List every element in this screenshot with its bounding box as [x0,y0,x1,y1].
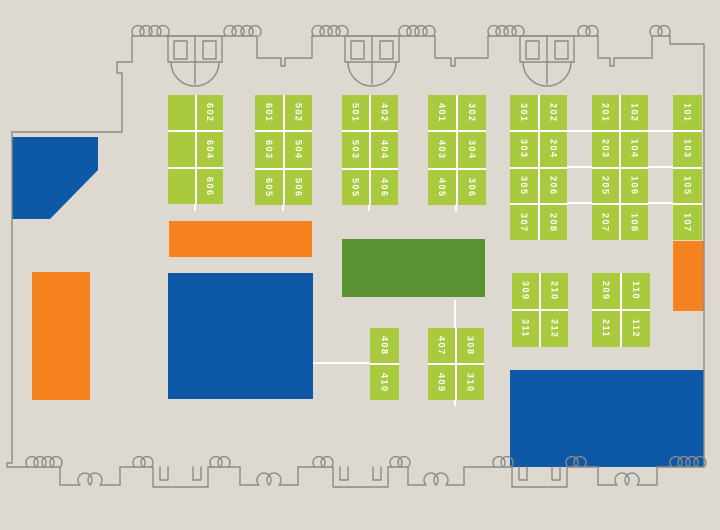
booth-label: 210 [550,281,560,301]
booth-label: 205 [601,176,611,196]
booth-404[interactable]: 404 [371,132,398,167]
booth-label: 209 [601,281,611,301]
booth-102[interactable]: 102 [621,95,648,130]
booth-107[interactable]: 107 [673,205,702,240]
booth-label: 402 [380,103,390,123]
booth-304[interactable]: 304 [458,132,486,167]
booth-label: 503 [351,140,361,160]
booth-206[interactable]: 206 [540,169,568,204]
booth-605[interactable]: 605 [255,170,283,205]
booth-202[interactable]: 202 [540,95,568,130]
booth-606[interactable]: 606 [197,169,224,204]
booth-601[interactable]: 601 [255,95,283,130]
booth-401[interactable]: 401 [428,95,456,130]
booth-label: 604 [205,140,215,160]
booth-label: 404 [380,140,390,160]
booth-block-block-400-500: 501402503404505406 [342,95,398,205]
booth-403[interactable]: 403 [428,132,456,167]
booth-210[interactable]: 210 [541,273,568,309]
booth-label: 105 [683,176,693,196]
booth-311[interactable]: 311 [512,311,539,347]
booth-label: 201 [601,103,611,123]
booth-204[interactable]: 204 [540,132,568,167]
booth-block-block-200-300: 301202303204305206307208 [510,95,567,240]
booth-309[interactable]: 309 [512,273,539,309]
booth-label: 207 [601,213,611,233]
booth-label: 310 [466,373,476,393]
booth-603[interactable]: 603 [255,132,283,167]
booth-307[interactable]: 307 [510,205,538,240]
booth-label: 506 [293,178,303,198]
booth-207[interactable]: 207 [592,205,619,240]
booth-label: 112 [631,319,641,338]
booth-label: 106 [630,176,640,196]
booth-label: 211 [601,319,611,338]
booth-label: 311 [521,319,531,338]
booth-602[interactable]: 602 [197,95,224,130]
booth-label: 101 [683,103,693,123]
booth-406[interactable]: 406 [371,170,398,205]
booth-block-block-600: 602604606 [168,95,223,204]
booth-405[interactable]: 405 [428,170,456,205]
booth-203[interactable]: 203 [592,132,619,167]
booth-label: 309 [521,281,531,301]
booth-block-block-408: 408410 [370,328,399,400]
booth-label: 108 [630,213,640,233]
booth-label: 501 [351,103,361,123]
booth-label: 502 [293,103,303,123]
booth-label: 407 [437,336,447,356]
booth-604[interactable]: 604 [197,132,224,167]
booth-block-block-407-308: 407308409310 [428,328,484,400]
booth-label: 103 [683,139,693,159]
booth-label: 302 [467,103,477,123]
booth-505[interactable]: 505 [342,170,369,205]
booth-block-block-200-100-mid: 209110211112 [592,273,650,347]
booth-label: 102 [630,103,640,123]
booth-501[interactable]: 501 [342,95,369,130]
booth-unlabeled[interactable] [168,132,195,167]
booth-label: 505 [351,178,361,198]
booth-408[interactable]: 408 [370,328,399,363]
booth-label: 401 [437,103,447,123]
booth-302[interactable]: 302 [458,95,486,130]
booth-layer: 6026046066015026035046055065014025034045… [0,0,720,530]
booth-label: 405 [437,178,447,198]
booth-label: 606 [205,177,215,197]
booth-label: 307 [519,213,529,233]
booth-506[interactable]: 506 [285,170,313,205]
booth-label: 203 [601,139,611,159]
booth-208[interactable]: 208 [540,205,568,240]
booth-504[interactable]: 504 [285,132,313,167]
booth-110[interactable]: 110 [622,273,650,309]
booth-label: 304 [467,140,477,160]
booth-label: 303 [519,139,529,159]
booth-106[interactable]: 106 [621,169,648,204]
booth-label: 308 [466,336,476,356]
booth-label: 504 [293,140,303,160]
booth-303[interactable]: 303 [510,132,538,167]
booth-103[interactable]: 103 [673,132,702,167]
booth-label: 107 [683,213,693,233]
booth-label: 403 [437,140,447,160]
booth-label: 104 [630,139,640,159]
booth-label: 301 [519,103,529,123]
booth-label: 409 [437,373,447,393]
booth-label: 410 [380,373,390,393]
booth-block-block-300-200-mid: 309210311212 [512,273,568,347]
booth-label: 110 [631,281,641,300]
booth-211[interactable]: 211 [592,311,620,347]
booth-104[interactable]: 104 [621,132,648,167]
booth-410[interactable]: 410 [370,365,399,400]
booth-503[interactable]: 503 [342,132,369,167]
booth-label: 208 [548,213,558,233]
booth-409[interactable]: 409 [428,365,455,400]
booth-label: 202 [548,103,558,123]
booth-306[interactable]: 306 [458,170,486,205]
booth-502[interactable]: 502 [285,95,313,130]
booth-label: 601 [264,103,274,123]
booth-block-block-100-200: 201102203104205106207108 [592,95,648,240]
booth-label: 305 [519,176,529,196]
booth-305[interactable]: 305 [510,169,538,204]
booth-112[interactable]: 112 [622,311,650,347]
booth-308[interactable]: 308 [457,328,484,363]
booth-label: 306 [467,178,477,198]
booth-201[interactable]: 201 [592,95,619,130]
booth-label: 408 [380,336,390,356]
booth-209[interactable]: 209 [592,273,620,309]
booth-label: 605 [264,178,274,198]
booth-105[interactable]: 105 [673,169,702,204]
booth-label: 602 [205,103,215,123]
booth-108[interactable]: 108 [621,205,648,240]
booth-407[interactable]: 407 [428,328,455,363]
booth-label: 406 [380,178,390,198]
booth-310[interactable]: 310 [457,365,484,400]
booth-label: 212 [550,319,560,339]
booth-block-block-500-600: 601502603504605506 [255,95,312,205]
booth-label: 603 [264,140,274,160]
booth-unlabeled[interactable] [168,95,195,130]
booth-block-block-300-400: 401302403304405306 [428,95,486,205]
booth-205[interactable]: 205 [592,169,619,204]
booth-301[interactable]: 301 [510,95,538,130]
booth-402[interactable]: 402 [371,95,398,130]
booth-label: 206 [548,176,558,196]
booth-unlabeled[interactable] [168,169,195,204]
booth-212[interactable]: 212 [541,311,568,347]
booth-label: 204 [548,139,558,159]
booth-block-block-100: 101103105107 [673,95,702,240]
booth-101[interactable]: 101 [673,95,702,130]
floor-plan: 6026046066015026035046055065014025034045… [0,0,720,530]
